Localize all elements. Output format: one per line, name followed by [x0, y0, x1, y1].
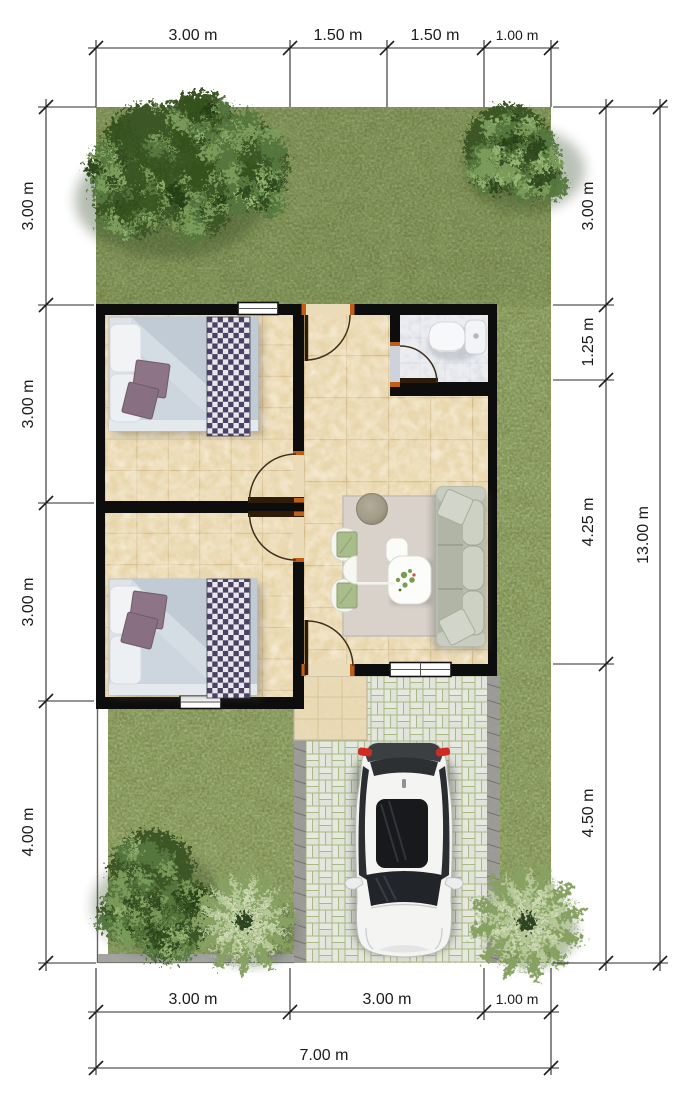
svg-text:3.00 m: 3.00 m	[169, 27, 218, 44]
svg-text:4.00 m: 4.00 m	[20, 808, 37, 857]
svg-text:3.00 m: 3.00 m	[20, 578, 37, 627]
svg-text:1.00 m: 1.00 m	[496, 27, 539, 43]
svg-text:1.50 m: 1.50 m	[314, 27, 363, 44]
svg-text:3.00 m: 3.00 m	[169, 991, 218, 1008]
svg-text:4.50 m: 4.50 m	[580, 789, 597, 838]
svg-text:3.00 m: 3.00 m	[363, 991, 412, 1008]
svg-text:3.00 m: 3.00 m	[580, 182, 597, 231]
svg-text:1.25 m: 1.25 m	[580, 318, 597, 367]
svg-text:3.00 m: 3.00 m	[20, 182, 37, 231]
svg-text:1.50 m: 1.50 m	[411, 27, 460, 44]
svg-text:7.00 m: 7.00 m	[300, 1047, 349, 1064]
svg-text:4.25 m: 4.25 m	[580, 498, 597, 547]
svg-text:3.00 m: 3.00 m	[20, 380, 37, 429]
svg-text:13.00 m: 13.00 m	[635, 506, 652, 564]
svg-text:1.00 m: 1.00 m	[496, 991, 539, 1007]
